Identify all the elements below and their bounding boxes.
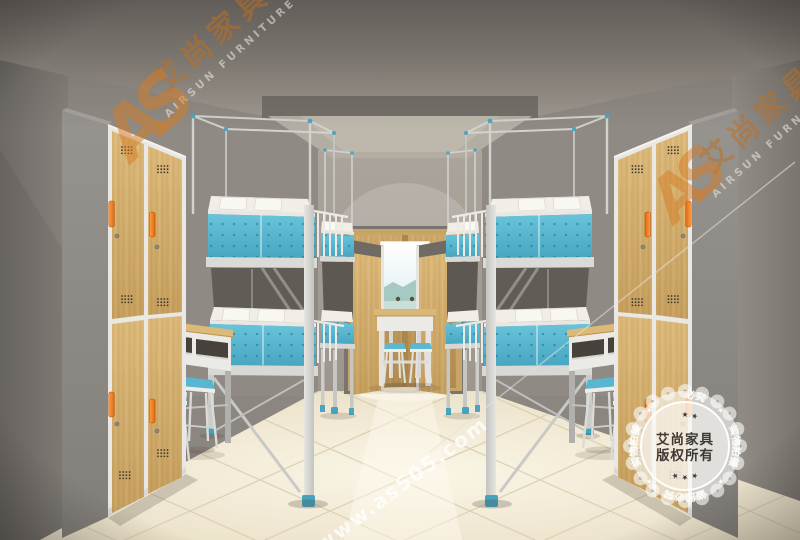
vignette <box>0 0 800 540</box>
room-render <box>0 0 800 540</box>
product-render-image: 艾尚家具 AIRSUN FURNITURE AS 艾尚家具 AIRSUN FUR… <box>0 0 800 540</box>
